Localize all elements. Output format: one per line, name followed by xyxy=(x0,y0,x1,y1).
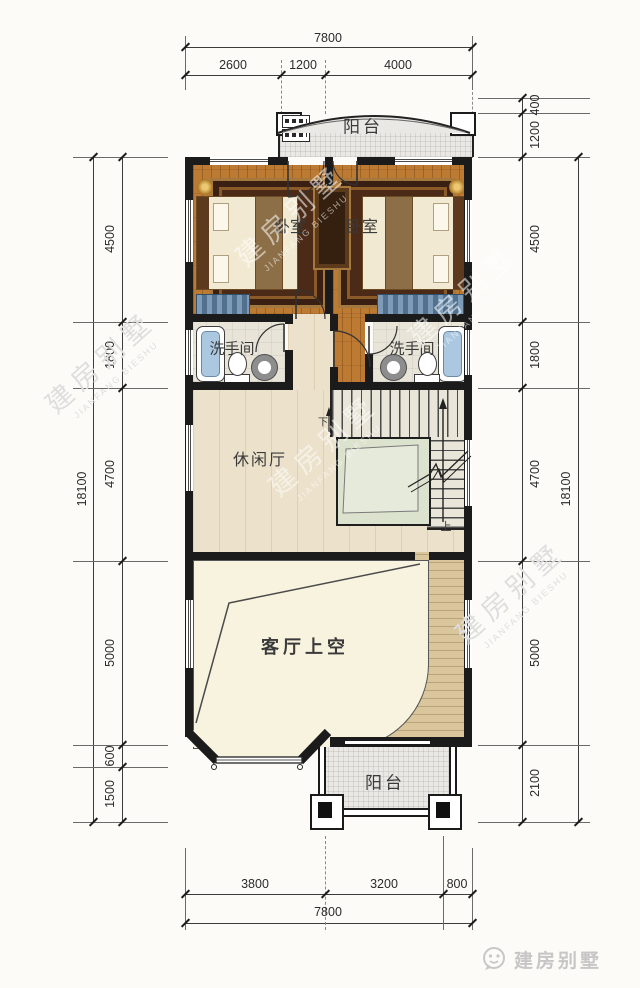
dim-bottom-seg: 3200 xyxy=(353,877,415,891)
dim-left-seg: 1800 xyxy=(103,324,117,386)
sink-left xyxy=(251,354,278,381)
ext-line xyxy=(478,388,590,389)
dim-line xyxy=(185,47,472,48)
balcony-column-core xyxy=(436,802,450,818)
dim-top-seg: 4000 xyxy=(367,58,429,72)
ext-line xyxy=(185,848,186,930)
door-opening-balcony-left xyxy=(288,157,325,165)
dim-line xyxy=(185,894,472,895)
room-label-bath-right: 洗手间 xyxy=(389,338,434,359)
dim-left-seg: 1500 xyxy=(103,763,117,825)
dim-left-total: 18100 xyxy=(75,458,89,520)
ext-line xyxy=(478,322,590,323)
pillow xyxy=(433,203,449,231)
room-label-bedroom-right: 卧室 xyxy=(346,213,378,237)
dim-left-seg: 4500 xyxy=(103,208,117,270)
stair-label-up: 上 xyxy=(441,518,452,534)
dim-left-seg: 4700 xyxy=(103,443,117,505)
room-label-bath-left: 洗手间 xyxy=(209,338,254,359)
dim-left-seg: 5000 xyxy=(103,622,117,684)
blanket xyxy=(385,197,413,289)
wall-hall-left-stub xyxy=(285,314,293,324)
dim-top-total: 7800 xyxy=(297,31,359,45)
railing-bottom-wall xyxy=(345,739,430,746)
dim-right-seg: 1200 xyxy=(528,104,542,166)
window xyxy=(210,157,268,165)
dim-right-seg: 2100 xyxy=(528,752,542,814)
dim-line xyxy=(185,75,472,76)
window xyxy=(465,440,472,506)
pillow xyxy=(433,255,449,283)
window xyxy=(186,330,193,375)
wall-bedroom-left-bottom xyxy=(193,314,293,322)
wall-lounge-bottom-a xyxy=(193,552,415,560)
wall-lounge-bottom-b xyxy=(429,552,464,560)
dim-bottom-seg: 3800 xyxy=(224,877,286,891)
brand-logo-text: 建房别墅 xyxy=(514,946,602,973)
dim-top-seg: 1200 xyxy=(272,58,334,72)
wall-bedroom-right-bottom xyxy=(365,314,464,322)
dim-right-total: 18100 xyxy=(559,458,573,520)
stair-well xyxy=(336,437,431,526)
lamp xyxy=(449,179,465,195)
stair-upper-run xyxy=(330,390,466,437)
room-label-living-void: 客厅上空 xyxy=(261,633,349,659)
balcony-post xyxy=(450,112,476,136)
blanket xyxy=(255,197,283,289)
stair-right-run xyxy=(427,437,464,530)
planter-box xyxy=(282,129,310,142)
window xyxy=(465,330,472,375)
dim-right-seg: 4700 xyxy=(528,443,542,505)
lamp xyxy=(197,179,213,195)
headboard xyxy=(197,197,209,289)
floor-plan-canvas: 阳台 卧室 卧室 洗手间 洗手间 休闲厅 客厅上空 阳台 下 上 7800 26… xyxy=(0,0,640,988)
dim-right-seg: 1800 xyxy=(528,324,542,386)
bed-right xyxy=(362,196,466,290)
stair-label-down: 下 xyxy=(318,414,328,429)
wall-hall-right-stub xyxy=(330,314,338,331)
room-label-balcony-bottom: 阳台 xyxy=(365,769,405,794)
dim-right-seg: 5000 xyxy=(528,622,542,684)
wall-bath-left-bottom xyxy=(193,382,288,390)
ext-line xyxy=(478,561,590,562)
room-label-balcony-top: 阳台 xyxy=(343,113,383,138)
window xyxy=(395,157,452,165)
window xyxy=(465,600,472,668)
ext-line xyxy=(478,822,590,823)
pillow xyxy=(213,203,229,231)
dim-line xyxy=(122,157,123,822)
bed-left xyxy=(196,196,298,290)
window xyxy=(186,425,193,491)
window xyxy=(465,200,472,262)
room-label-bedroom-left: 卧室 xyxy=(274,213,306,237)
room-label-lounge: 休闲厅 xyxy=(233,446,287,470)
dim-line xyxy=(522,98,523,822)
door-opening-balcony-right xyxy=(333,157,357,165)
chat-face-icon xyxy=(478,944,508,974)
planter-box xyxy=(282,115,310,128)
balcony-column-core xyxy=(318,802,332,818)
brand-logo: 建房别墅 xyxy=(478,944,602,974)
window xyxy=(186,200,193,262)
wall-bath-right-bottom xyxy=(330,382,464,390)
dim-bottom-seg: 800 xyxy=(426,877,488,891)
window xyxy=(186,600,193,668)
floor-hallway xyxy=(288,314,333,390)
dim-line xyxy=(185,923,472,924)
bathtub-right xyxy=(438,326,467,382)
ext-line xyxy=(478,745,590,746)
pillow xyxy=(213,255,229,283)
dim-top-seg: 2600 xyxy=(202,58,264,72)
dim-line xyxy=(93,157,94,822)
dim-right-seg: 4500 xyxy=(528,208,542,270)
dim-line xyxy=(578,157,579,822)
dim-bottom-total: 7800 xyxy=(297,905,359,919)
